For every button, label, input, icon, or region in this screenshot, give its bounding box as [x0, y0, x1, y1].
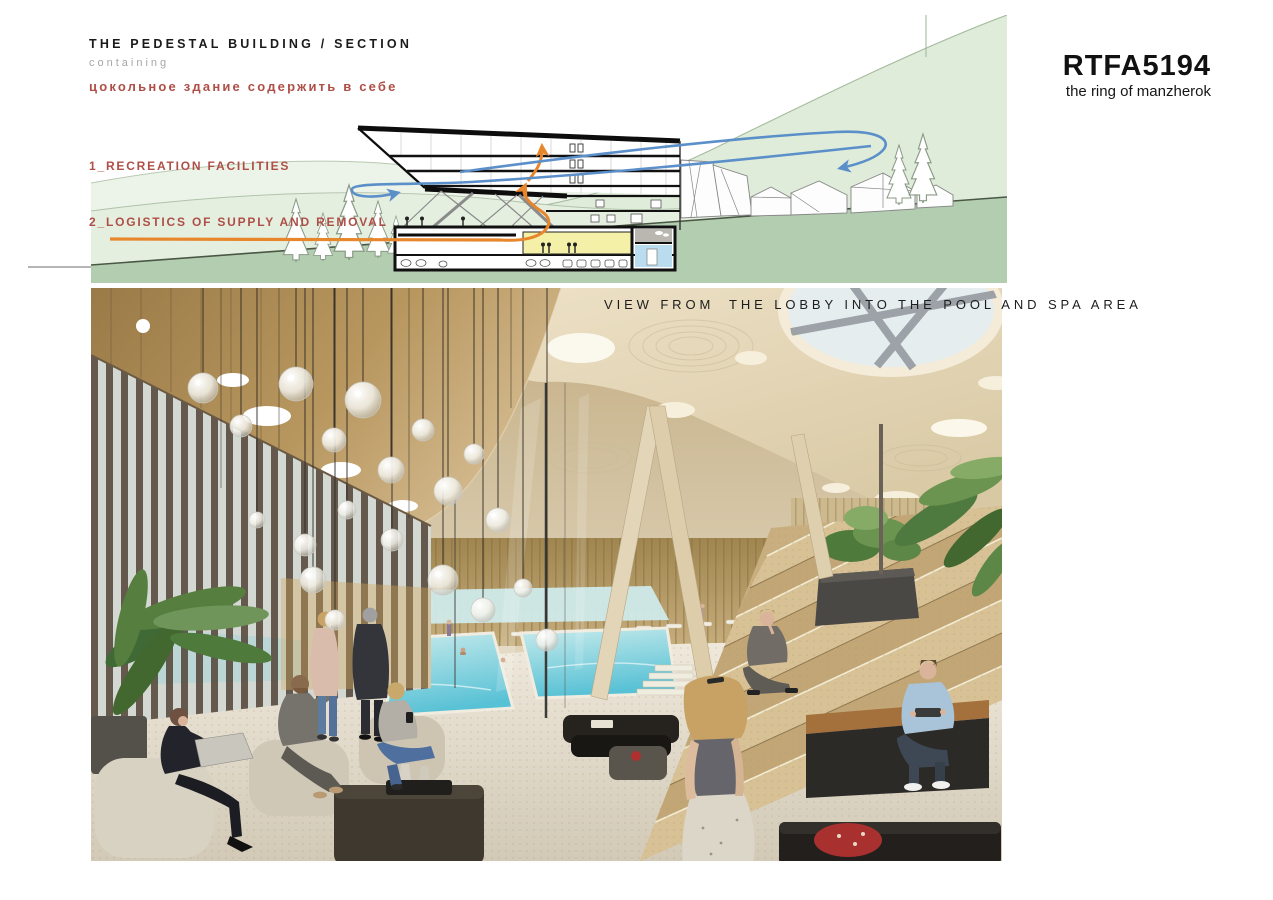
- render-photo-panel: [91, 288, 1002, 861]
- step-bench: [806, 700, 989, 798]
- section-title-russian: цокольное здание содержить в себе: [89, 79, 519, 95]
- ottoman-right: [779, 822, 1001, 861]
- presentation-board: THE PEDESTAL BUILDING / SECTION containi…: [0, 0, 1273, 900]
- render-caption: VIEW FROM THE LOBBY INTO THE POOL AND SP…: [604, 297, 1142, 312]
- entry-code: RTFA5194: [1063, 50, 1211, 82]
- section-subtitle: containing: [89, 57, 519, 70]
- project-logo: RTFA5194 the ring of manzherok: [1063, 50, 1211, 101]
- margin-tick-line: [28, 266, 91, 268]
- section-item-list: 1_RECREATION FACILITIES 2_LOGISTICS OF S…: [89, 120, 519, 268]
- section-item-2: 2_LOGISTICS OF SUPPLY AND REMOVAL: [89, 213, 519, 232]
- section-item-1: 1_RECREATION FACILITIES: [89, 157, 519, 176]
- armchair-left: [95, 758, 213, 858]
- section-title: THE PEDESTAL BUILDING / SECTION: [89, 37, 519, 52]
- pool-spa-render: [91, 288, 1002, 861]
- entry-tagline: the ring of manzherok: [1063, 83, 1211, 101]
- section-text-block: THE PEDESTAL BUILDING / SECTION containi…: [89, 37, 519, 268]
